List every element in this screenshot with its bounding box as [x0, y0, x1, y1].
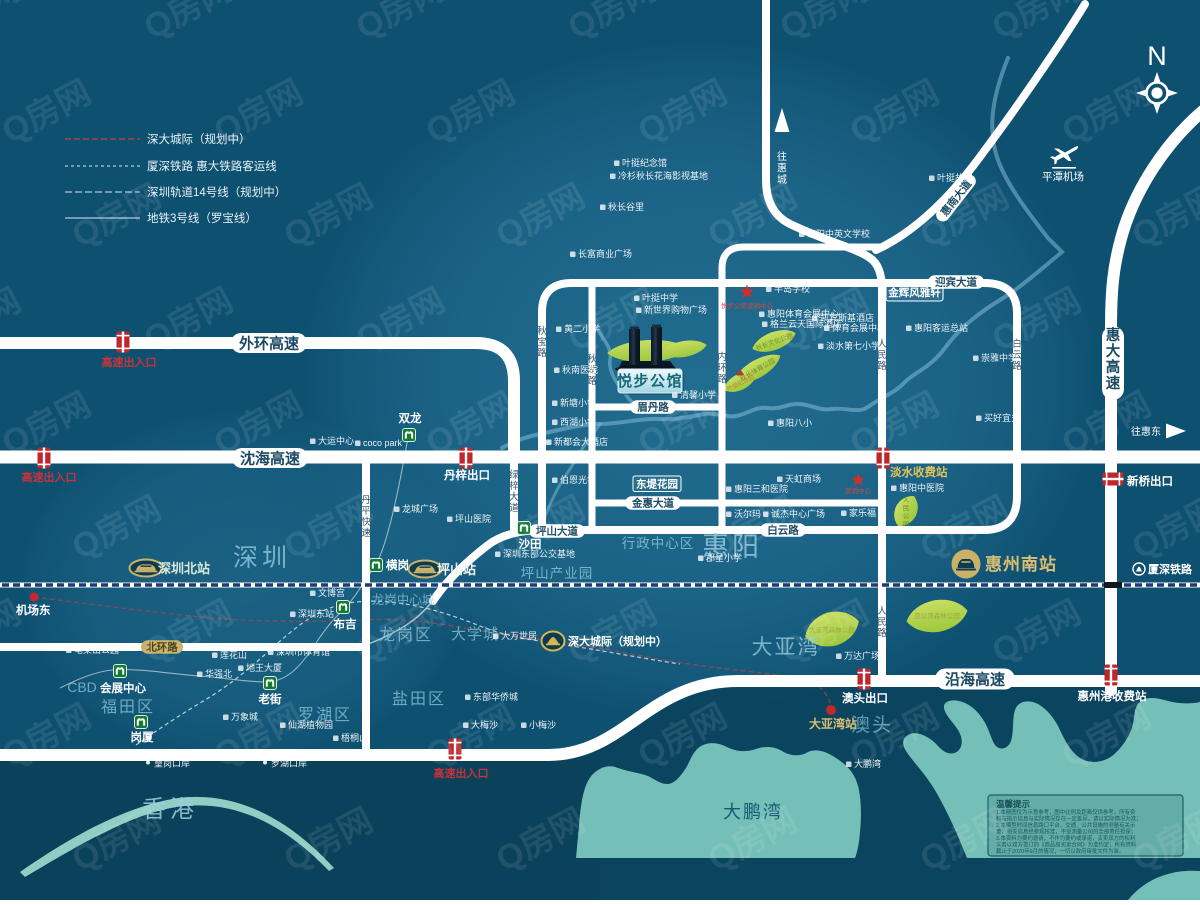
- svg-text:CBD: CBD: [67, 679, 97, 695]
- svg-text:梧桐山: 梧桐山: [341, 732, 368, 743]
- svg-text:冷杉秋长花海影视基地: 冷杉秋长花海影视基地: [618, 170, 708, 181]
- svg-text:大亚湾站: 大亚湾站: [809, 716, 857, 731]
- svg-text:澳头出口: 澳头出口: [842, 691, 888, 705]
- svg-text:深圳: 深圳: [233, 544, 291, 572]
- svg-text:2.本模型时间信息路口平台、交通、公共设施的测量有关示: 2.本模型时间信息路口平台、交通、公共设施的测量有关示: [996, 821, 1136, 829]
- svg-text:悦步公馆营销中心: 悦步公馆营销中心: [721, 301, 774, 310]
- svg-text:买好宜多: 买好宜多: [984, 412, 1020, 423]
- svg-text:布吉: 布吉: [333, 617, 357, 631]
- svg-text:半岛学校: 半岛学校: [774, 283, 810, 294]
- svg-text:1.本精图仅为示意参考，图中比例及距离仅供参考，所有资: 1.本精图仅为示意参考，图中比例及距离仅供参考，所有资: [996, 808, 1136, 816]
- svg-text:东堤花园: 东堤花园: [636, 478, 678, 491]
- svg-text:龙城广场: 龙城广场: [402, 503, 438, 514]
- svg-text:罗湖口岸: 罗湖口岸: [271, 759, 307, 769]
- svg-text:坪山产业园: 坪山产业园: [521, 566, 594, 581]
- svg-text:惠州南站: 惠州南站: [985, 554, 1057, 574]
- svg-text:营销中心: 营销中心: [845, 486, 872, 495]
- svg-text:地王大厦: 地王大厦: [246, 662, 282, 673]
- svg-text:小梅沙: 小梅沙: [529, 719, 556, 730]
- svg-text:叶挺故居: 叶挺故居: [937, 172, 973, 183]
- svg-text:厦深铁路 惠大铁路客运线: 厦深铁路 惠大铁路客运线: [147, 159, 277, 173]
- svg-text:华强北: 华强北: [205, 668, 232, 679]
- svg-text:惠大高速: 惠大高速: [1106, 326, 1121, 392]
- svg-text:深圳东站: 深圳东站: [298, 608, 334, 619]
- svg-text:内环路: 内环路: [717, 351, 727, 385]
- svg-text:coco park: coco park: [363, 438, 403, 448]
- svg-text:福田区: 福田区: [101, 698, 155, 716]
- svg-text:盐田区: 盐田区: [392, 690, 446, 708]
- svg-text:沿海高速: 沿海高速: [945, 670, 1005, 688]
- svg-text:温馨提示: 温馨提示: [996, 799, 1031, 809]
- svg-text:文博宫: 文博宫: [318, 587, 345, 598]
- svg-text:丹梓出口: 丹梓出口: [444, 468, 490, 482]
- svg-text:高速出入口: 高速出入口: [102, 355, 157, 369]
- svg-text:新塘小学: 新塘小学: [560, 397, 596, 408]
- svg-text:横岗: 横岗: [386, 558, 409, 572]
- svg-text:3.本资料为要约邀请，不作为要约或承诺，买卖双方的权利: 3.本资料为要约邀请，不作为要约或承诺，买卖双方的权利: [996, 834, 1135, 842]
- svg-text:叶挺纪念馆: 叶挺纪念馆: [622, 157, 667, 168]
- svg-text:厦深铁路: 厦深铁路: [1148, 562, 1193, 576]
- svg-text:皇岗口岸: 皇岗口岸: [154, 758, 190, 769]
- svg-text:人民路: 人民路: [877, 606, 887, 639]
- svg-text:深圳市体育馆: 深圳市体育馆: [276, 646, 330, 657]
- svg-text:淡水收费站: 淡水收费站: [890, 465, 948, 479]
- svg-text:双龙: 双龙: [398, 411, 422, 425]
- svg-text:沈海高速: 沈海高速: [240, 449, 300, 467]
- svg-text:新桥出口: 新桥出口: [1127, 474, 1173, 488]
- svg-text:惠阳客运总站: 惠阳客运总站: [914, 322, 968, 333]
- svg-text:悦步公馆: 悦步公馆: [617, 372, 683, 390]
- svg-text:会展中心: 会展中心: [99, 681, 146, 695]
- svg-text:天虹商场: 天虹商场: [785, 473, 821, 484]
- svg-text:长富商业广场: 长富商业广场: [578, 248, 632, 259]
- svg-text:秋长谷里: 秋长谷里: [608, 201, 644, 212]
- svg-text:N: N: [1147, 41, 1167, 71]
- svg-text:岗厦: 岗厦: [131, 730, 154, 744]
- svg-text:截止于2020年9月的情况，一切以政府审批文件为准。: 截止于2020年9月的情况，一切以政府审批文件为准。: [996, 847, 1124, 855]
- svg-text:秋宝路: 秋宝路: [537, 325, 547, 359]
- svg-text:金辉风雅轩: 金辉风雅轩: [887, 286, 941, 299]
- svg-text:机场东: 机场东: [16, 603, 51, 617]
- svg-text:平潭机场: 平潭机场: [1042, 170, 1084, 183]
- svg-text:深圳轨道14号线（规划中）: 深圳轨道14号线（规划中）: [147, 185, 286, 199]
- svg-text:惠阳中医院: 惠阳中医院: [899, 482, 944, 493]
- svg-text:义务以双方签订的《商品房买卖合同》为准约定；所有资料: 义务以双方签订的《商品房买卖合同》为准约定；所有资料: [996, 841, 1137, 849]
- svg-text:料与指示信息与实际情况存在一定差异，请以实际情况为准；: 料与指示信息与实际情况存在一定差异，请以实际情况为准；: [996, 815, 1142, 823]
- svg-text:秋南医院: 秋南医院: [562, 364, 598, 375]
- svg-text:行政中心区: 行政中心区: [622, 536, 695, 551]
- svg-text:绿梓大道: 绿梓大道: [509, 469, 519, 514]
- svg-text:深圳北站: 深圳北站: [158, 561, 210, 576]
- svg-text:意，相关信息经参观核准，不受测量公司的全部责任担保；: 意，相关信息经参观核准，不受测量公司的全部责任担保；: [996, 828, 1136, 836]
- svg-text:新都会大酒店: 新都会大酒店: [554, 436, 608, 447]
- svg-text:地铁3号线（罗宝线）: 地铁3号线（罗宝线）: [147, 211, 257, 225]
- svg-text:西湖小学: 西湖小学: [560, 416, 596, 427]
- svg-text:坪山站: 坪山站: [437, 562, 476, 577]
- svg-text:万达广场: 万达广场: [844, 650, 880, 661]
- svg-text:惠阳中英文学校: 惠阳中英文学校: [807, 228, 870, 239]
- svg-text:家乐福: 家乐福: [849, 507, 876, 518]
- svg-text:亚公顶森林公园: 亚公顶森林公园: [914, 611, 960, 620]
- svg-text:外环高速: 外环高速: [238, 334, 299, 352]
- svg-text:笔架山公园: 笔架山公园: [74, 644, 119, 655]
- svg-text:高速出入口: 高速出入口: [22, 470, 77, 484]
- svg-text:淡水第七小学: 淡水第七小学: [826, 340, 880, 351]
- svg-text:伯恩光学: 伯恩光学: [560, 474, 596, 485]
- svg-text:大运中心: 大运中心: [318, 435, 354, 446]
- svg-text:坪山医院: 坪山医院: [455, 513, 491, 524]
- svg-text:莲花山: 莲花山: [220, 649, 247, 660]
- svg-text:惠阳八小: 惠阳八小: [776, 417, 812, 428]
- svg-text:金惠大道: 金惠大道: [631, 497, 674, 510]
- svg-text:大学城: 大学城: [451, 626, 499, 643]
- svg-text:大万世居: 大万世居: [501, 630, 537, 641]
